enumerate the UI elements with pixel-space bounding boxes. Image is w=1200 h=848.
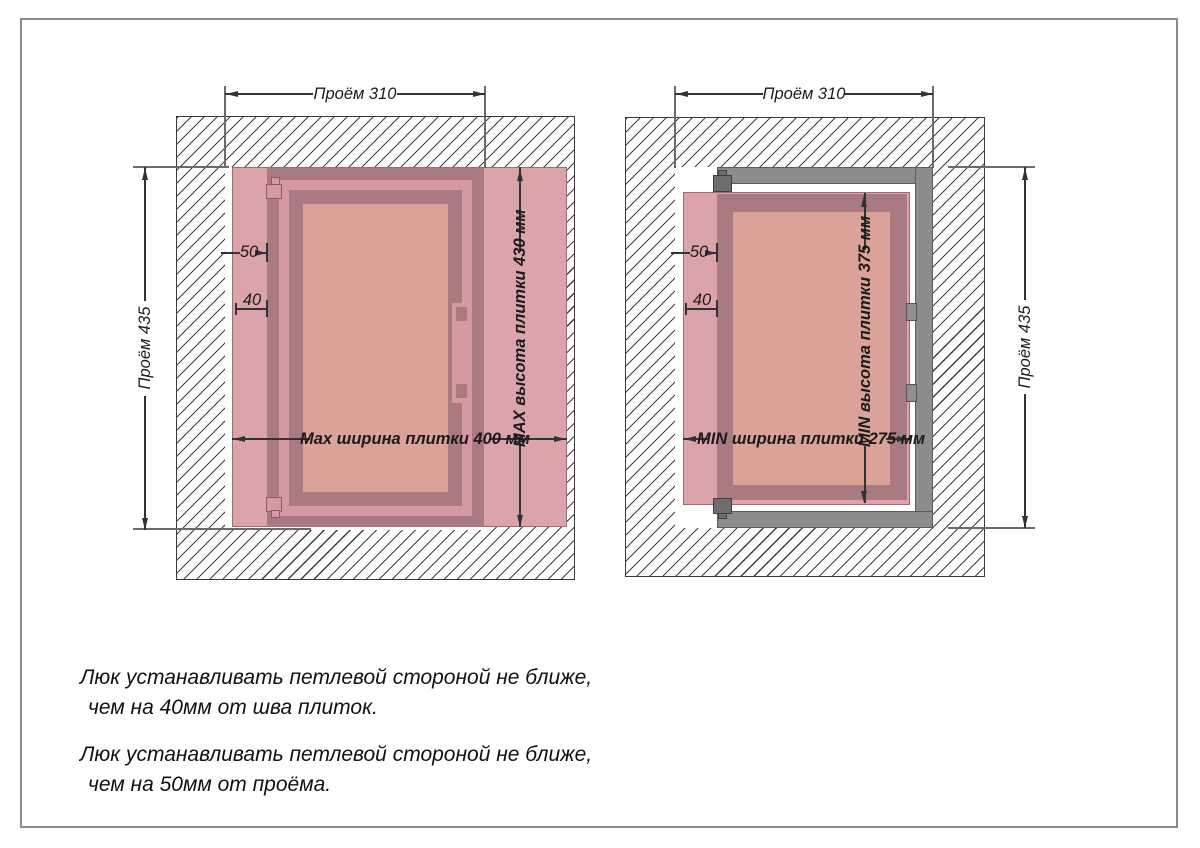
extension-line <box>133 528 311 530</box>
right-hatch-frame-top <box>717 167 933 184</box>
dim-label-right-opening-width: Проём 310 <box>724 84 884 104</box>
dim-arrow-right <box>473 91 485 97</box>
right-hinge-top-icon <box>713 175 732 192</box>
note-hinge-seam-line2: чем на 40мм от шва плиток. <box>88 693 378 723</box>
dim-label-left-offset-40: 40 <box>232 290 272 310</box>
dim-label-min-tile-height: MIN высота плитки 375 мм <box>855 247 875 447</box>
dim-arrow-down <box>861 491 867 503</box>
dim-arrow-down <box>1022 516 1028 528</box>
dim-label-max-tile-width: Max ширина плитки 400 мм <box>300 429 500 449</box>
right-hatch-frame-bottom <box>717 511 933 528</box>
dim-arrow-up <box>517 169 523 181</box>
dim-arrow-left <box>226 91 238 97</box>
dim-arrow-up <box>861 195 867 207</box>
left-hinge-bottom-pin-icon <box>271 510 280 518</box>
extension-line <box>484 86 486 168</box>
dim-label-right-opening-height: Проём 435 <box>1015 267 1035 427</box>
dim-label-max-tile-height: MAX высота плитки 430 мм <box>510 247 530 447</box>
right-hinge-bottom-pin-icon <box>718 513 727 519</box>
extension-line <box>932 86 934 168</box>
dim-label-left-offset-50: 50 <box>229 242 269 262</box>
left-hinge-top-pin-icon <box>271 177 280 185</box>
dim-label-right-offset-50: 50 <box>679 242 719 262</box>
dim-label-left-opening-height: Проём 435 <box>135 268 155 428</box>
right-latch-tab-top <box>906 303 917 321</box>
right-hatch-frame-right <box>915 167 933 528</box>
dim-label-left-opening-width: Проём 310 <box>275 84 435 104</box>
note-hinge-seam-line1: Люк устанавливать петлевой стороной не б… <box>80 663 592 693</box>
right-latch-tab-bottom <box>906 384 917 402</box>
extension-line <box>224 86 226 168</box>
note-hinge-opening-line1: Люк устанавливать петлевой стороной не б… <box>80 740 592 770</box>
note-hinge-opening-line2: чем на 50мм от проёма. <box>88 770 331 800</box>
dim-arrow-up <box>1022 168 1028 180</box>
dim-arrow-right <box>921 91 933 97</box>
left-latch-notch-bottom <box>456 384 467 398</box>
dim-arrow-left <box>676 91 688 97</box>
dim-arrow-left <box>233 436 245 442</box>
extension-line <box>674 86 676 168</box>
technical-drawing-page: Проём 310 Проём 435 50 40 Max ширина пли… <box>0 0 1200 848</box>
left-hinge-top-icon <box>266 184 282 199</box>
left-latch-notch-top <box>456 307 467 321</box>
dim-arrow-left <box>684 436 696 442</box>
dim-label-right-offset-40: 40 <box>682 290 722 310</box>
right-hinge-bottom-icon <box>713 498 732 514</box>
right-hinge-top-pin-icon <box>718 170 727 176</box>
dim-arrow-down <box>142 518 148 530</box>
dim-arrow-right <box>554 436 566 442</box>
dim-arrow-down <box>517 515 523 527</box>
dim-arrow-up <box>142 168 148 180</box>
